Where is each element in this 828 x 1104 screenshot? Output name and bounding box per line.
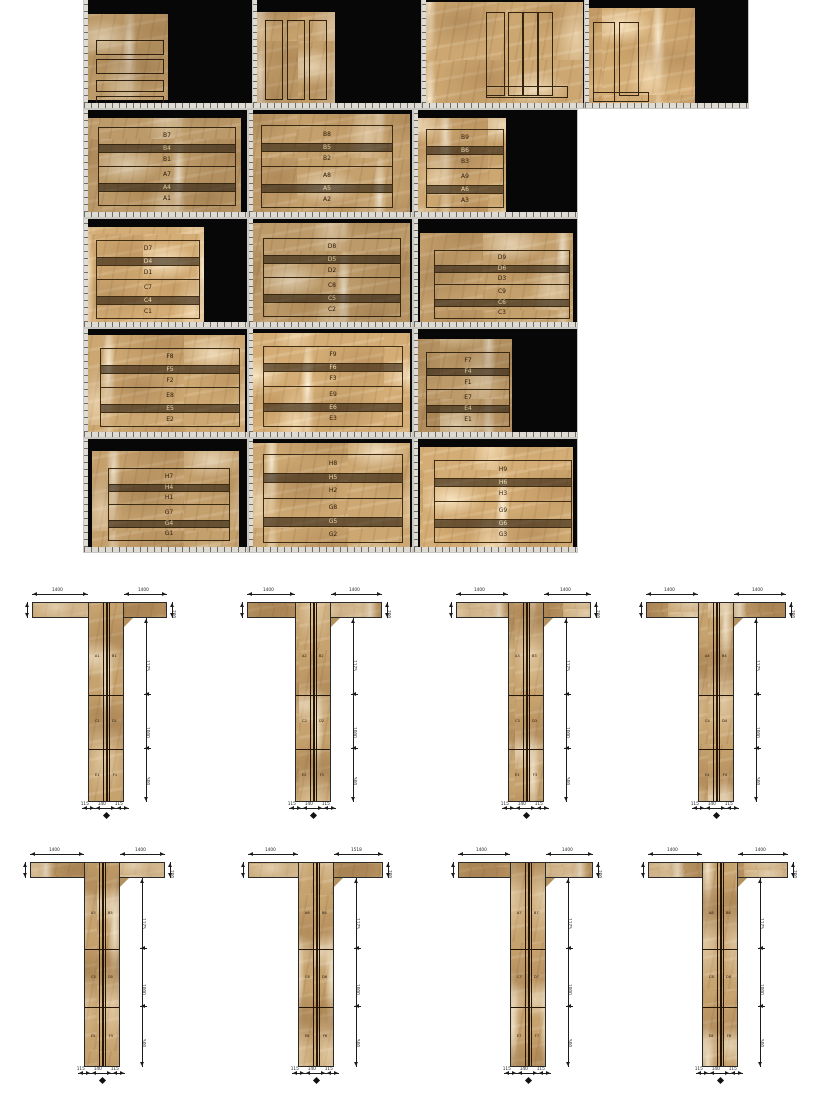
dimension-text: 115 (690, 802, 698, 806)
slab-band: F1 (426, 375, 510, 390)
dimension-text: 1175 (141, 918, 145, 929)
stem-joint-line (716, 603, 718, 801)
flange-height-dim (242, 602, 243, 618)
dimension-text: 1000 (355, 984, 359, 995)
dimension-line-horizontal: 115 (116, 808, 129, 809)
datum-marker-icon (313, 1077, 320, 1084)
cut-outline (619, 22, 639, 96)
slab-band-label: B8 (323, 132, 331, 138)
slab-band-label: A7 (163, 172, 171, 178)
dimension-text: 1175 (352, 660, 356, 671)
stem-dim-chain: 11751000500 (566, 618, 567, 802)
marble-slab-photo: D9D6D3C9C6C3 (420, 233, 573, 325)
stem-cut-line (703, 949, 737, 950)
dimension-text: 200 (792, 870, 796, 878)
dimension-line-horizontal: 1400 (247, 594, 295, 595)
piece-code: D3 (532, 720, 537, 724)
datum-marker-icon (310, 812, 317, 819)
stem-cut-line (296, 695, 330, 696)
slab-band-label: A4 (163, 185, 171, 191)
dimension-text: 1175 (145, 660, 149, 671)
piece-code: D5 (108, 976, 113, 980)
dimension-text: 115 (114, 802, 122, 806)
dimension-text: 200 (386, 610, 390, 618)
dim-tick (758, 948, 765, 949)
slab-sheet-r2s1: B7B4B1A7A4A1 (84, 110, 247, 217)
dimension-text: 140 (307, 1067, 315, 1071)
slab-band: G9 (434, 501, 572, 520)
dimension-text: 115 (502, 1067, 510, 1071)
sheet-ruler-left (249, 329, 253, 432)
dim-tick (566, 948, 573, 949)
slab-band: E3 (263, 411, 403, 427)
dim-tick (754, 694, 761, 695)
slab-band: F7 (426, 352, 510, 369)
piece-code: A6 (305, 912, 310, 916)
stem-cut-line (703, 1007, 737, 1008)
band-group: F8F5F2E8E5E2 (100, 349, 240, 427)
dimension-text: 200 (169, 870, 173, 878)
stem-cut-line (509, 749, 543, 750)
slab-band: C1 (96, 304, 200, 319)
slab-band-label: B4 (163, 146, 171, 152)
slab-band: H9 (434, 460, 572, 479)
slab-band-label: F2 (166, 378, 173, 384)
t-column-tB4: 1400 1400 200 A8B8 (648, 848, 818, 1093)
stem-piece-labels: A2B2 (296, 654, 330, 659)
dimension-line-horizontal: 140 (302, 808, 323, 809)
piece-code: C8 (709, 976, 714, 980)
piece-code: D6 (322, 976, 327, 980)
marble-slab-photo (88, 14, 168, 100)
chamfer (120, 878, 129, 887)
sheet-ruler-bottom (253, 103, 422, 108)
slab-band-label: E7 (464, 395, 472, 401)
stem-piece-labels: C7D7 (511, 975, 545, 980)
dimension-line-horizontal: 1518 (334, 854, 383, 855)
dimension-text: 500 (567, 1039, 571, 1047)
cut-outline (96, 40, 164, 55)
dimension-line-horizontal: 1400 (648, 854, 702, 855)
cut-outline (508, 12, 523, 96)
sheet-ruler-bottom (422, 103, 585, 108)
chamfer (546, 878, 555, 887)
t-column-tA3: 1400 1400 200 A3B3 (456, 588, 621, 828)
piece-code: E1 (95, 774, 100, 778)
flange-height-dim: 200 (388, 862, 389, 878)
t-column-tA1: 1400 1400 200 A1B1 (32, 588, 197, 828)
slab-band: B2 (261, 151, 393, 167)
stem-piece-labels: C1D1 (89, 719, 123, 724)
marble-slab-photo: B9B6B3A9A6A3 (418, 118, 506, 215)
dimension-line-horizontal: 1400 (248, 854, 298, 855)
sheet-ruler-bottom (84, 103, 253, 108)
stem-piece-labels: E3F3 (509, 773, 543, 778)
dimension-line-horizontal: 115 (323, 808, 336, 809)
piece-code: A8 (709, 912, 714, 916)
slab-band-label: B9 (461, 135, 469, 141)
slab-band-label: F9 (329, 352, 336, 358)
slab-band: G2 (263, 526, 403, 543)
cut-outline (309, 20, 327, 100)
datum-marker-icon (713, 812, 720, 819)
dim-tick (140, 948, 147, 949)
dimension-text: 115 (500, 802, 508, 806)
dimension-text: 140 (97, 802, 105, 806)
band-group: D7D4D1C7C4C1 (96, 241, 200, 319)
dimension-line-horizontal: 115 (726, 808, 739, 809)
slab-sheet-r1s3 (422, 0, 585, 108)
slab-band-label: F3 (329, 376, 336, 382)
slab-band-label: B1 (163, 157, 171, 163)
dim-tick (758, 1006, 765, 1007)
sheet-ruler-bottom (414, 322, 577, 327)
slab-band-label: A3 (461, 198, 469, 204)
slab-band-label: A6 (461, 187, 469, 193)
dimension-text: 1000 (759, 984, 763, 995)
dimension-text: 1400 (559, 588, 570, 592)
dimension-text: 140 (304, 802, 312, 806)
slab-band: E2 (100, 412, 240, 427)
dimension-text: 115 (534, 802, 542, 806)
stem-joint-line (106, 603, 108, 801)
piece-code: B4 (722, 655, 727, 659)
slab-band: A9 (426, 168, 504, 186)
stem-joint-line (313, 603, 315, 801)
flange-height-dim (25, 862, 26, 878)
dimension-text: 200 (595, 610, 599, 618)
slab-band: G7 (108, 504, 230, 521)
piece-code: C2 (302, 720, 307, 724)
slab-sheet-r4s1: F8F5F2E8E5E2 (84, 329, 247, 437)
stem-piece-labels: E7F7 (511, 1034, 545, 1039)
sheet-ruler-left (585, 0, 589, 103)
flange-height-dim (451, 602, 452, 618)
dimension-line-horizontal: 1400 (544, 594, 591, 595)
dimension-line-horizontal: 115 (112, 1073, 125, 1074)
stem-joint-line (713, 603, 714, 801)
stem-joint-line (526, 603, 528, 801)
dimension-text: 1400 (664, 588, 675, 592)
piece-code: B5 (108, 912, 113, 916)
sheet-ruler-left (84, 219, 88, 322)
slab-sheet-r4s2: F9F6F3E9E6E3 (249, 329, 412, 437)
stem-cut-line (299, 1007, 333, 1008)
dimension-text: 1175 (755, 660, 759, 671)
sheet-ruler-left (414, 439, 418, 547)
piece-code: A1 (95, 655, 100, 659)
sheet-ruler-bottom (249, 432, 412, 437)
dimension-text: 1400 (476, 848, 487, 852)
t-column-tA2: 1400 1400 200 A2B2 (247, 588, 412, 828)
sheet-ruler-bottom (84, 432, 247, 437)
dimension-text: 200 (790, 610, 794, 618)
slab-band-label: D8 (328, 244, 336, 250)
cut-outline (265, 20, 283, 100)
dimension-text: 1000 (145, 727, 149, 738)
slab-sheet-r5s1: H7H4H1G7G4G1 (84, 439, 247, 552)
piece-code: F7 (534, 1035, 538, 1039)
dimension-line-horizontal: 115 (326, 1073, 339, 1074)
dimension-line-horizontal: 140 (515, 808, 536, 809)
sheet-ruler-bottom (585, 103, 748, 108)
piece-code: C4 (705, 720, 710, 724)
band-group: B9B6B3A9A6A3 (426, 130, 504, 208)
slab-band-label: H1 (165, 495, 173, 501)
slab-band-label: E6 (329, 405, 337, 411)
stem-piece-labels: C3D3 (509, 719, 543, 724)
slab-band-label: H9 (499, 467, 507, 473)
dimension-text: 500 (141, 1039, 145, 1047)
sheet-ruler-left (249, 439, 253, 547)
stem-cut-line (511, 949, 545, 950)
sheet-ruler-left (414, 329, 418, 432)
dimension-line-horizontal: 1400 (32, 594, 88, 595)
piece-code: C7 (517, 976, 522, 980)
slab-sheet-r5s2: H8H5H2G8G5G2 (249, 439, 412, 552)
datum-marker-icon (525, 1077, 532, 1084)
dim-tick (754, 748, 761, 749)
t-column-tB2: 1400 1518 200 A6B6 (248, 848, 413, 1093)
slab-band-label: E1 (464, 417, 472, 423)
cut-outline (593, 92, 649, 102)
piece-code: F4 (722, 774, 726, 778)
piece-code: F3 (532, 774, 536, 778)
marble-slab-photo (587, 8, 695, 104)
sheet-ruler-bottom (414, 212, 577, 217)
slab-band: C8 (263, 277, 401, 295)
slab-band: G8 (263, 498, 403, 518)
slab-band-label: C8 (328, 283, 336, 289)
dimension-text: 1000 (567, 984, 571, 995)
sheet-ruler-left (84, 110, 88, 212)
dimension-text: 140 (517, 802, 525, 806)
dimension-line-horizontal: 115 (536, 808, 549, 809)
stem-cut-line (509, 695, 543, 696)
dimension-text: 115 (80, 802, 88, 806)
marble-slab-photo: H8H5H2G8G5G2 (251, 443, 410, 550)
t-column-tB3: 1400 1400 200 A7B7 (458, 848, 623, 1093)
slab-band-label: A5 (323, 186, 331, 192)
stem-cut-line (85, 949, 119, 950)
piece-code: E6 (305, 1035, 310, 1039)
slab-band-label: C2 (328, 307, 336, 313)
band-group: F7F4F1E7E4E1 (426, 353, 510, 427)
sheet-ruler-left (253, 0, 257, 103)
band-group: B8B5B2A8A5A2 (261, 126, 393, 208)
dimension-text: 500 (755, 777, 759, 785)
sheet-ruler-left (84, 0, 88, 103)
sheet-ruler-left (84, 329, 88, 432)
dimension-text: 115 (321, 802, 329, 806)
stem-piece-labels: A3B3 (509, 654, 543, 659)
band-group: B7B4B1A7A4A1 (98, 128, 236, 206)
marble-slab-photo (257, 12, 335, 104)
slab-band-label: H8 (329, 461, 337, 467)
dimension-line-horizontal: 140 (91, 1073, 112, 1074)
dimension-line-horizontal: 140 (95, 808, 116, 809)
slab-band-label: A9 (461, 174, 469, 180)
piece-code: C3 (515, 720, 520, 724)
dimension-line-horizontal: 1400 (734, 594, 786, 595)
slab-band: G3 (434, 527, 572, 543)
slab-band-label: F7 (464, 358, 471, 364)
dimension-text: 500 (759, 1039, 763, 1047)
sheet-ruler-left (414, 219, 418, 322)
sheet-ruler-left (249, 219, 253, 322)
piece-code: B1 (112, 655, 117, 659)
dimension-text: 1400 (561, 848, 572, 852)
slab-sheet-r4s3: F7F4F1E7E4E1 (414, 329, 577, 437)
slab-band-label: B2 (323, 156, 331, 162)
dimension-text: 140 (711, 1067, 719, 1071)
dimension-text: 1175 (759, 918, 763, 929)
dimension-text: 1400 (265, 848, 276, 852)
slab-sheet-r3s1: D7D4D1C7C4C1 (84, 219, 247, 327)
slab-band: F2 (100, 373, 240, 388)
piece-code: E2 (302, 774, 307, 778)
dimension-line-horizontal: 140 (709, 1073, 730, 1074)
stem-dim-chain: 11751000500 (142, 878, 143, 1067)
dim-tick (144, 694, 151, 695)
stem-piece-labels: C4D4 (699, 719, 733, 724)
slab-band-label: H5 (329, 475, 337, 481)
slab-band: A2 (261, 192, 393, 208)
piece-code: B3 (532, 655, 537, 659)
dimension-text: 115 (536, 1067, 544, 1071)
stem-piece-labels: C5D5 (85, 975, 119, 980)
dimension-text: 115 (694, 1067, 702, 1071)
t-stem: A7B7 C7D7 E7F7 (510, 862, 546, 1067)
chamfer (738, 878, 747, 887)
piece-code: F8 (726, 1035, 730, 1039)
slab-band-label: B5 (323, 145, 331, 151)
slab-sheet-r1s2 (253, 0, 422, 108)
slab-band-label: H6 (499, 480, 507, 486)
sheet-ruler-bottom (414, 547, 577, 552)
stem-joint-line (529, 603, 530, 801)
dimension-line-horizontal: 115 (538, 1073, 551, 1074)
flange-height-dim: 200 (387, 602, 388, 618)
slab-sheet-r2s2: B8B5B2A8A5A2 (249, 110, 412, 217)
dimension-line-horizontal: 140 (517, 1073, 538, 1074)
sheet-ruler-left (422, 0, 426, 103)
slab-sheet-r5s3: H9H6H3G9G6G3 (414, 439, 577, 552)
piece-code: A3 (515, 655, 520, 659)
sheet-ruler-bottom (84, 322, 247, 327)
slab-band-label: C7 (144, 285, 152, 291)
stem-dim-chain: 11751000500 (356, 878, 357, 1067)
stem-piece-labels: A7B7 (511, 911, 545, 916)
slab-band-label: D3 (498, 276, 506, 282)
slab-band: A7 (98, 166, 236, 184)
dimension-text: 115 (110, 1067, 118, 1071)
slab-band-label: F5 (166, 367, 173, 373)
stem-cut-line (699, 749, 733, 750)
stem-piece-labels: C8D8 (703, 975, 737, 980)
stem-piece-labels: E5F5 (85, 1034, 119, 1039)
sheet-ruler-bottom (84, 547, 247, 552)
slab-band: C2 (263, 302, 401, 317)
band-group: H7H4H1G7G4G1 (108, 469, 230, 541)
dim-tick (144, 748, 151, 749)
slab-band-label: D2 (328, 268, 336, 274)
piece-code: C5 (91, 976, 96, 980)
piece-code: E8 (709, 1035, 714, 1039)
dim-tick (566, 1006, 573, 1007)
piece-code: F6 (322, 1035, 326, 1039)
dimension-text: 1400 (755, 848, 766, 852)
cut-outline (96, 80, 164, 92)
marble-slab-photo: H9H6H3G9G6G3 (420, 447, 573, 550)
dimension-line-horizontal: 140 (305, 1073, 326, 1074)
dimension-text: 500 (565, 777, 569, 785)
piece-code: D2 (319, 720, 324, 724)
flange-height-dim: 200 (598, 862, 599, 878)
dimension-text: 115 (724, 802, 732, 806)
stem-piece-labels: C6D6 (299, 975, 333, 980)
slab-band-label: G8 (329, 505, 337, 511)
stem-piece-labels: A4B4 (699, 654, 733, 659)
dimension-line-horizontal: 115 (730, 1073, 743, 1074)
dimension-text: 1000 (352, 727, 356, 738)
slab-band-label: D5 (328, 257, 336, 263)
slab-band: D2 (263, 263, 401, 278)
dimension-text: 1000 (141, 984, 145, 995)
dimension-text: 500 (352, 777, 356, 785)
band-group: F9F6F3E9E6E3 (263, 347, 403, 427)
sheet-ruler-bottom (249, 547, 412, 552)
stem-cut-line (89, 749, 123, 750)
t-stem: A5B5 C5D5 E5F5 (84, 862, 120, 1067)
slab-band: E8 (100, 387, 240, 405)
band-group: H8H5H2G8G5G2 (263, 455, 403, 543)
dim-tick (351, 748, 358, 749)
piece-code: B2 (319, 655, 324, 659)
slab-band: C3 (434, 306, 570, 319)
piece-code: F1 (112, 774, 116, 778)
piece-code: E3 (515, 774, 520, 778)
stem-dim-chain: 11751000500 (353, 618, 354, 802)
slab-sheet-r3s3: D9D6D3C9C6C3 (414, 219, 577, 327)
slab-sheet-r3s2: D8D5D2C8C5C2 (249, 219, 412, 327)
slab-band: C7 (96, 279, 200, 297)
slab-band: E9 (263, 386, 403, 404)
dimension-line-horizontal: 1400 (124, 594, 167, 595)
slab-band-label: E8 (166, 393, 174, 399)
stem-joint-line (103, 603, 104, 801)
slab-band-label: B6 (461, 148, 469, 154)
t-stem: A2B2 C2D2 E2F2 (295, 602, 331, 802)
slab-band-label: D7 (144, 246, 152, 252)
slab-band-label: F1 (464, 380, 471, 386)
chamfer (334, 878, 343, 887)
piece-code: B7 (534, 912, 539, 916)
dimension-text: 1400 (137, 588, 148, 592)
dimension-line-horizontal: 1400 (646, 594, 698, 595)
slab-band-label: E3 (329, 416, 337, 422)
flange-height-dim (27, 602, 28, 618)
dimension-text: 1175 (355, 918, 359, 929)
flange-height-dim (243, 862, 244, 878)
stem-cut-line (296, 749, 330, 750)
piece-code: D8 (726, 976, 731, 980)
marble-slab-photo: B7B4B1A7A4A1 (88, 118, 241, 213)
sheet-ruler-bottom (84, 212, 247, 217)
marble-slab-photo: H7H4H1G7G4G1 (92, 451, 239, 550)
slab-band-label: A2 (323, 197, 331, 203)
piece-code: C1 (95, 720, 100, 724)
